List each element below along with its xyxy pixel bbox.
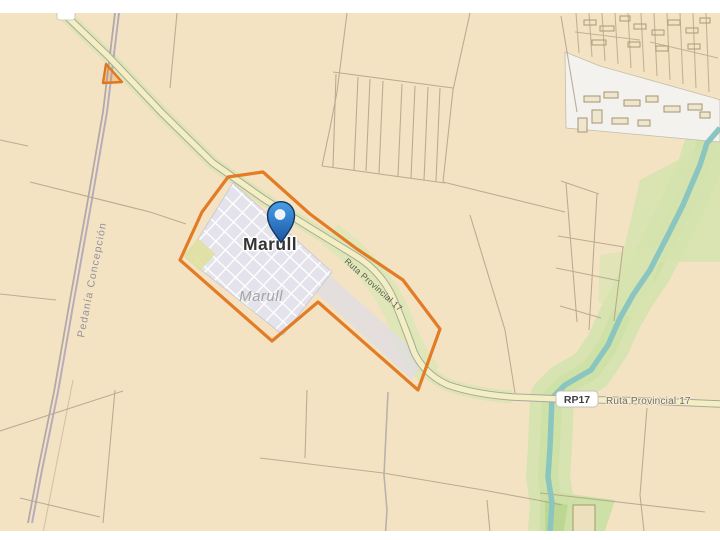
- map-viewport[interactable]: Pedanía Concepción Ruta Provincial 17 RP…: [0, 0, 720, 540]
- top-margin: [0, 0, 720, 13]
- map-canvas[interactable]: Pedanía Concepción Ruta Provincial 17 RP…: [0, 0, 720, 540]
- pin-center-dot: [275, 209, 286, 220]
- area-label: Marull: [239, 288, 283, 305]
- road-badge-label: RP17: [564, 394, 590, 406]
- bottom-margin: [0, 531, 720, 540]
- town-label: Marull: [243, 234, 297, 254]
- road-label-horizontal: Ruta Provincial 17: [606, 396, 691, 407]
- road-shield-rp17: RP17: [556, 391, 598, 407]
